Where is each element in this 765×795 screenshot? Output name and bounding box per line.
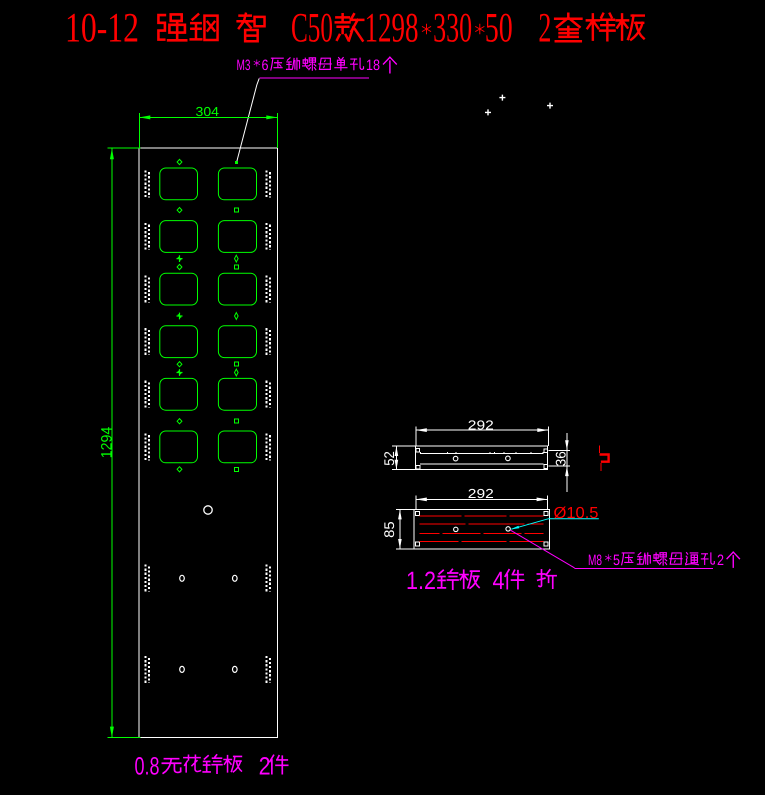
svg-text:4: 4 xyxy=(493,567,505,595)
svg-text:2: 2 xyxy=(717,552,724,569)
svg-text:1.2: 1.2 xyxy=(406,567,436,595)
svg-text:10-12: 10-12 xyxy=(65,6,139,52)
svg-text:36: 36 xyxy=(553,451,569,466)
svg-text:2: 2 xyxy=(259,753,271,781)
svg-text:C50: C50 xyxy=(291,6,333,52)
svg-text:5: 5 xyxy=(613,552,620,569)
svg-text:304: 304 xyxy=(196,104,220,119)
svg-text:Ø10.5: Ø10.5 xyxy=(554,505,599,522)
svg-text:1294: 1294 xyxy=(99,427,116,459)
svg-text:6: 6 xyxy=(262,57,269,74)
svg-text:52: 52 xyxy=(381,451,397,466)
svg-text:M3: M3 xyxy=(237,57,251,74)
svg-text:0.8: 0.8 xyxy=(135,753,160,781)
svg-text:M8: M8 xyxy=(588,552,602,569)
svg-text:85: 85 xyxy=(381,521,397,538)
svg-text:292: 292 xyxy=(468,486,494,501)
svg-text:292: 292 xyxy=(468,418,494,433)
svg-text:2: 2 xyxy=(538,6,551,52)
svg-text:18: 18 xyxy=(366,57,380,74)
svg-text:1298: 1298 xyxy=(365,6,419,52)
svg-text:50: 50 xyxy=(485,6,513,52)
svg-text:330: 330 xyxy=(433,6,472,52)
